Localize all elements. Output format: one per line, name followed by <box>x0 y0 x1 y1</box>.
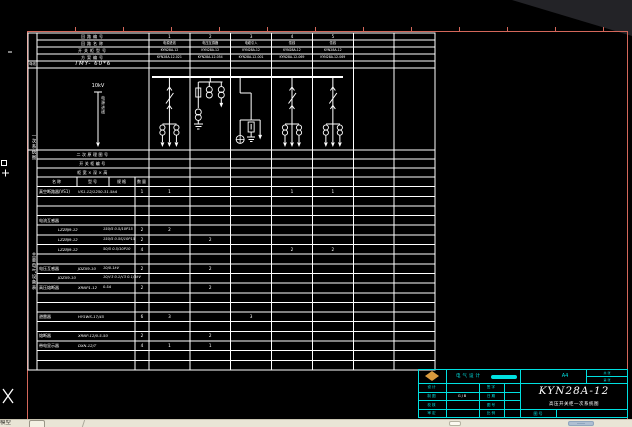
status-strip <box>0 419 632 427</box>
info-row-label: 二次原理图号 <box>37 150 149 159</box>
equipment-model: LZZBJ9-12 <box>58 245 108 255</box>
section-label-primary: 一次系统图 <box>29 133 36 195</box>
header-cell: KYN28A-12 <box>231 47 272 54</box>
equipment-model: DXN-12/T <box>78 341 128 351</box>
field-value <box>504 383 520 392</box>
equipment-qty: 1 <box>135 187 149 197</box>
field-value <box>446 383 479 392</box>
equipment-qty: 4 <box>135 341 149 351</box>
header-cell: KYN28A-12 <box>190 47 231 54</box>
equipment-scheme-qty: 1 <box>149 341 190 351</box>
viewport-marker-icon <box>2 161 7 166</box>
header-cell: 2 <box>190 33 231 40</box>
header-cell: KYN28A-12-069 <box>312 54 353 61</box>
equipment-spec: 10/√3 0.1/√3 0.1/3kV <box>103 273 147 283</box>
section-label-equipment: 主要电气设备表 <box>29 252 36 356</box>
equipment-scheme-qty: 2 <box>272 245 313 255</box>
equipment-name: 电流互感器 <box>39 216 84 226</box>
layout-tab[interactable] <box>29 420 45 427</box>
field-label: 比例 <box>479 409 504 418</box>
equipment-scheme-qty: 2 <box>190 331 231 341</box>
field-value: GJB <box>446 392 479 401</box>
sheet-size: A4 <box>548 370 582 383</box>
drawing-number-label: 图号 <box>522 410 555 418</box>
bus-spec: TMY- 60*6 <box>37 61 149 68</box>
equipment-qty: 2 <box>135 283 149 293</box>
incoming-note: 电源进线 <box>101 96 107 136</box>
company-name: 电气设计 <box>448 372 490 382</box>
header-cell: 馈线 <box>312 40 353 47</box>
equipment-header: 名称 <box>37 177 77 187</box>
equipment-qty: 2 <box>135 235 149 245</box>
equipment-scheme-qty: 2 <box>312 245 353 255</box>
header-cell: 1 <box>149 33 190 40</box>
company-name-bar <box>491 375 517 379</box>
info-row-label: 柜宽×深×高 <box>37 168 149 177</box>
field-label: 签字 <box>479 383 504 392</box>
crosshair-icon <box>2 170 9 177</box>
info-row-label: 开关柜编号 <box>37 159 149 168</box>
header-cell: KYN28A-12-001 <box>231 54 272 61</box>
equipment-header: 规格 <box>109 177 135 187</box>
bus-label: 母线 <box>28 61 37 68</box>
field-label: 设计 <box>418 383 446 392</box>
equipment-scheme-qty: 3 <box>231 312 272 322</box>
cad-model-space: 回路编号12345回路名称电源进线电压互感器电缆引入馈线馈线开关柜型号KYN28… <box>0 0 632 427</box>
equipment-scheme-qty: 1 <box>272 187 313 197</box>
equipment-scheme-qty: 1 <box>312 187 353 197</box>
field-label: 审定 <box>418 409 446 418</box>
equipment-scheme-qty: 2 <box>190 235 231 245</box>
scrollbar-button[interactable] <box>449 421 461 427</box>
field-label: 制图 <box>418 392 446 401</box>
equipment-model: VS1-12/1250-31.5kA <box>78 187 128 197</box>
field-label: 图号 <box>479 401 504 410</box>
equipment-qty: 2 <box>135 264 149 274</box>
header-row-label: 回路编号 <box>37 33 149 40</box>
equipment-scheme-qty: 2 <box>190 283 231 293</box>
equipment-header: 数量 <box>135 177 149 187</box>
equipment-qty: 4 <box>135 245 149 255</box>
equipment-qty: 2 <box>135 331 149 341</box>
header-row-label: 方案编号 <box>37 54 149 61</box>
field-value <box>446 401 479 410</box>
header-row-label: 回路名称 <box>37 40 149 47</box>
header-row-label: 开关柜型号 <box>37 47 149 54</box>
equipment-scheme-qty: 1 <box>149 187 190 197</box>
field-value <box>504 401 520 410</box>
header-cell: 电缆引入 <box>231 40 272 47</box>
equipment-model: LZZBJ9-12 <box>58 225 108 235</box>
equipment-model: XRNP-12/0.5-50 <box>78 331 128 341</box>
field-label: 校核 <box>418 401 446 410</box>
header-cell: KYN28A-12 <box>272 47 313 54</box>
equipment-scheme-qty: 2 <box>190 264 231 274</box>
model-tab[interactable]: 模型 <box>0 420 15 427</box>
header-cell: 5 <box>312 33 353 40</box>
equipment-qty: 6 <box>135 312 149 322</box>
header-cell: 电源进线 <box>149 40 190 47</box>
equipment-header: 型号 <box>77 177 109 187</box>
drawing-number-value <box>558 410 626 418</box>
incoming-voltage: 10kV <box>80 83 116 90</box>
header-cell: KYN28A-12 <box>312 47 353 54</box>
header-cell: 3 <box>231 33 272 40</box>
equipment-model: JDZX9-10 <box>58 273 108 283</box>
equipment-model: HY5WS-17/45 <box>78 312 128 322</box>
pages-total: 共 张 <box>587 370 627 377</box>
header-cell: 馈线 <box>272 40 313 47</box>
drawing-title: KYN28A-12 <box>521 383 627 399</box>
drawing-subtitle: 高压开关柜一次系统图 <box>521 400 627 409</box>
header-cell: KYN28A-12-021 <box>149 54 190 61</box>
equipment-scheme-qty: 2 <box>149 225 190 235</box>
equipment-qty: 2 <box>135 225 149 235</box>
field-value <box>504 392 520 401</box>
ucs-cross-icon <box>3 389 13 403</box>
header-cell: KYN28A-12 <box>149 47 190 54</box>
field-label: 日期 <box>479 392 504 401</box>
header-cell: 电压互感器 <box>190 40 231 47</box>
equipment-scheme-qty: 3 <box>149 312 190 322</box>
margin-marks <box>0 0 28 427</box>
field-value <box>446 409 479 418</box>
scrollbar-thumb[interactable] <box>568 421 594 427</box>
header-cell: KYN28A-12-054 <box>190 54 231 61</box>
field-value <box>504 409 520 418</box>
equipment-model: LZZBJ9-12 <box>58 235 108 245</box>
header-cell: 4 <box>272 33 313 40</box>
equipment-scheme-qty: 1 <box>190 341 231 351</box>
header-cell: KYN28A-12-069 <box>272 54 313 61</box>
